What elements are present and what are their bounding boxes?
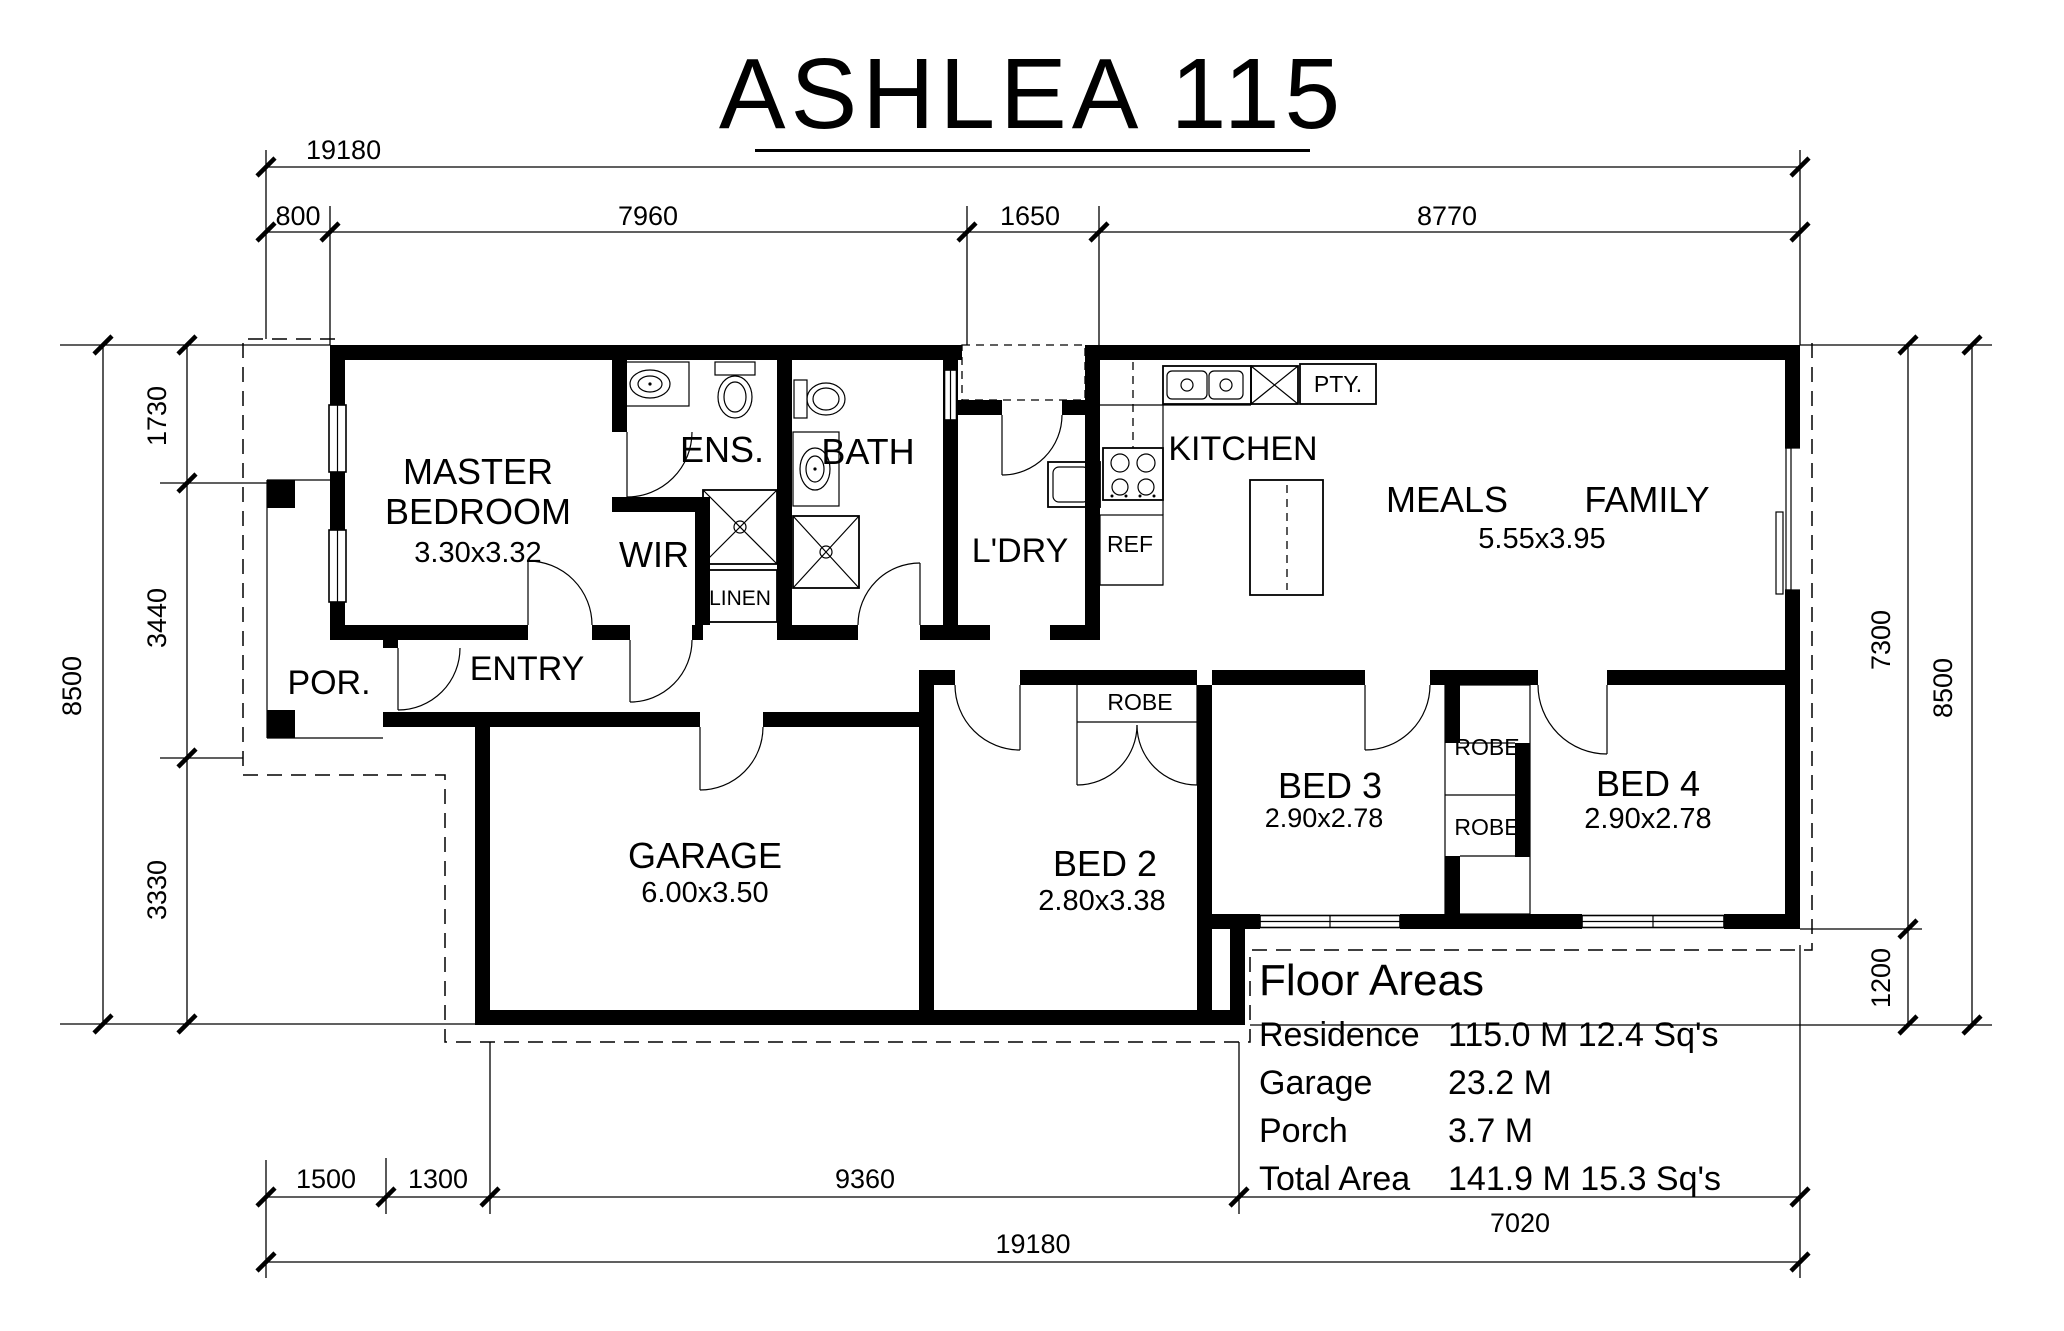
room-label-robe-bottom: ROBE	[1454, 814, 1519, 840]
wir-door	[630, 640, 692, 702]
dim-left-3440: 3440	[142, 588, 172, 648]
plan-title: ASHLEA 115	[719, 38, 1345, 150]
room-label-ens: ENS.	[680, 429, 764, 470]
master-door	[528, 561, 592, 625]
room-label-fridge: REF	[1107, 531, 1153, 557]
room-dims-garage: 6.00x3.50	[641, 877, 768, 909]
dim-left-overall: 8500	[57, 656, 87, 716]
dim-top-8770: 8770	[1417, 201, 1477, 231]
room-dims-meals-family: 5.55x3.95	[1478, 523, 1605, 555]
dim-top-1650: 1650	[1000, 201, 1060, 231]
dim-top-7960: 7960	[618, 201, 678, 231]
room-label-wir: WIR	[619, 534, 689, 575]
room-label-garage: GARAGE	[628, 835, 782, 876]
room-label-pantry: PTY.	[1314, 371, 1362, 397]
floor-areas-row-value: 115.0 M 12.4 Sq's	[1448, 1016, 1718, 1054]
master-window-1	[329, 405, 346, 472]
dim-bottom-9360: 9360	[835, 1164, 895, 1194]
bath-shower	[793, 516, 859, 588]
floorplan-sheet: ASHLEA 115 19180 800 7960 1650 8770 1500…	[0, 0, 2064, 1331]
room-label-kitchen: KITCHEN	[1168, 430, 1317, 468]
room-label-bed3: BED 3	[1278, 765, 1382, 806]
title-underline	[755, 149, 1310, 152]
floor-areas-row-value: 3.7 M	[1448, 1112, 1533, 1150]
dim-right-7300: 7300	[1866, 610, 1896, 670]
ens-toilet-icon	[715, 362, 755, 418]
dim-right-overall: 8500	[1928, 658, 1958, 718]
master-window-2	[329, 530, 346, 602]
room-label-bed4: BED 4	[1596, 763, 1700, 804]
bath-door	[858, 563, 920, 625]
family-sliding-door	[1776, 448, 1800, 594]
floor-areas-row-label: Residence	[1259, 1016, 1420, 1054]
dim-bottom-overall: 19180	[995, 1229, 1070, 1259]
bed3-window	[1260, 916, 1400, 928]
room-label-linen: LINEN	[709, 587, 771, 610]
floor-areas-heading: Floor Areas	[1259, 956, 1484, 1005]
kitchen-sink	[1163, 366, 1251, 404]
floor-areas-row-label: Total Area	[1259, 1160, 1410, 1198]
laundry-door	[1002, 415, 1062, 475]
ens-basin	[617, 362, 689, 406]
dimension-ticks	[94, 158, 1981, 1271]
room-dims-master: 3.30x3.32	[414, 537, 541, 569]
ens-shower	[703, 490, 777, 564]
room-label-bed2: BED 2	[1053, 843, 1157, 884]
dim-bottom-1500: 1500	[296, 1164, 356, 1194]
doors	[398, 415, 1607, 790]
room-label-ldry: L'DRY	[972, 532, 1069, 570]
floor-areas-row-label: Garage	[1259, 1064, 1372, 1102]
room-dims-bed4: 2.90x2.78	[1584, 803, 1711, 835]
stove-cooktop	[1103, 448, 1163, 500]
dim-top-800: 800	[275, 201, 320, 231]
island-bench	[1250, 480, 1323, 595]
room-label-master-2: BEDROOM	[385, 491, 571, 532]
room-label-bath: BATH	[821, 431, 914, 472]
bed3-door	[1365, 685, 1430, 750]
room-label-entry: ENTRY	[470, 650, 585, 688]
room-dims-bed2: 2.80x3.38	[1038, 885, 1165, 917]
kitchen-window-pane	[1251, 366, 1298, 404]
room-label-meals: MEALS	[1386, 479, 1508, 520]
dim-left-3330: 3330	[142, 860, 172, 920]
floor-areas-row-value: 23.2 M	[1448, 1064, 1552, 1102]
room-label-porch: POR.	[287, 664, 370, 702]
front-door	[398, 648, 460, 710]
room-dims-bed3: 2.90x2.78	[1265, 803, 1384, 833]
floor-areas-row-label: Porch	[1259, 1112, 1348, 1150]
floor-areas-row-value: 141.9 M 15.3 Sq's	[1448, 1160, 1721, 1198]
bath-window	[945, 370, 957, 420]
dim-right-1200: 1200	[1866, 948, 1896, 1008]
room-label-robe-top: ROBE	[1454, 734, 1519, 760]
bath-toilet-icon	[794, 380, 845, 418]
dimension-lines	[60, 150, 1992, 1278]
garage-internal-door	[700, 727, 763, 790]
dim-bottom-7020: 7020	[1490, 1208, 1550, 1238]
dim-bottom-1300: 1300	[408, 1164, 468, 1194]
room-label-robe-bed2: ROBE	[1107, 689, 1172, 715]
room-label-master-1: MASTER	[403, 451, 553, 492]
dim-top-overall: 19180	[306, 135, 381, 165]
bed4-door	[1538, 685, 1607, 754]
bed2-door	[955, 685, 1020, 750]
floorplan-drawing: ASHLEA 115 19180 800 7960 1650 8770 1500…	[0, 0, 2064, 1331]
dim-left-1730: 1730	[142, 386, 172, 446]
bed4-window	[1582, 916, 1724, 928]
labels: ASHLEA 115 19180 800 7960 1650 8770 1500…	[57, 38, 1958, 1259]
floor-areas-table: Floor Areas Residence 115.0 M 12.4 Sq's …	[1259, 956, 1721, 1198]
room-label-family: FAMILY	[1584, 479, 1709, 520]
